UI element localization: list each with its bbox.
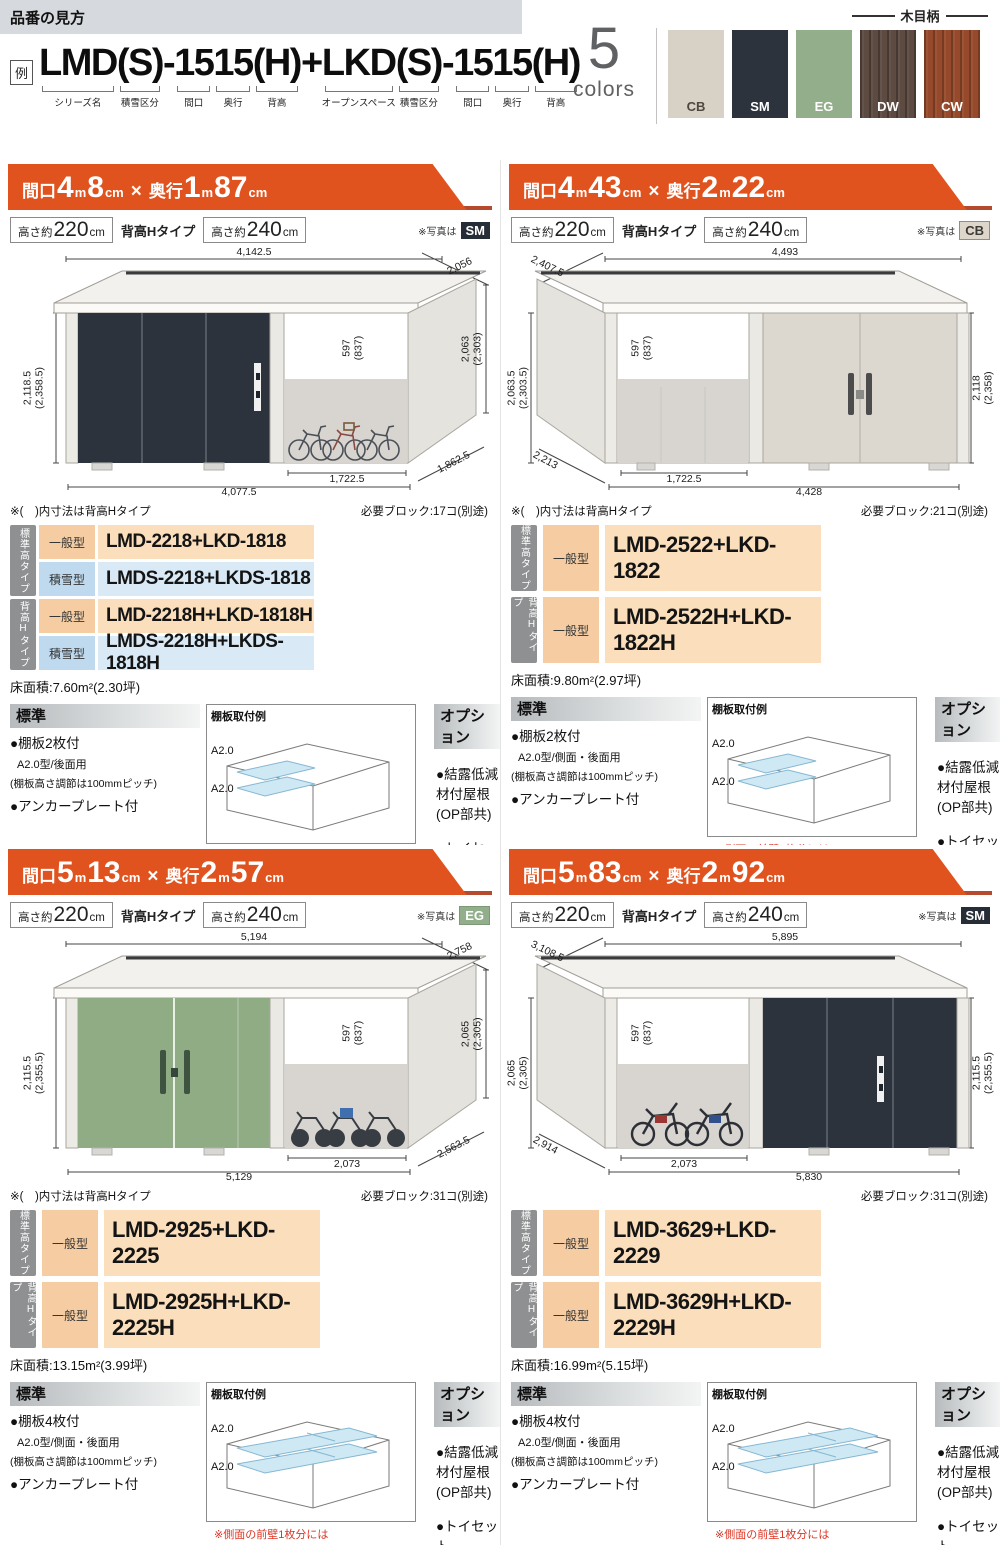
code-segment: + [301,44,322,95]
shelf-label: A2.0 [712,776,735,788]
divider [656,28,657,124]
shelf-label: A2.0 [211,1423,234,1435]
kind-cell: 一般型 [543,597,599,663]
options-heading: オプション [434,1382,500,1427]
dim-label: 2,063(2,303) [460,332,483,365]
height-240-pill: 高さ約240cm [203,902,306,928]
code-segment: LMDシリーズ名 [39,44,117,109]
shelf-column: 棚板取付例 A2.0 A2.0 ※側面の前壁1枚分には棚板は取付け [206,1382,428,1545]
floor-area: 床面積:9.80m²(2.97坪) [511,670,1000,689]
size-banner: 間口5m13cm×奥行2m57cm [8,849,496,895]
floor-area: 床面積:16.99m²(5.15坪) [511,1355,1000,1374]
height-220-pill: 高さ約220cm [10,217,113,243]
code-segment: 15奥行 [213,44,252,109]
model-cell: LMD-2522H+LKD-1822H [605,597,821,663]
kind-cell: 一般型 [42,1282,98,1348]
blocks-note: 必要ブロック:31コ(別途) [861,1188,988,1204]
product-panel-4: 間口5m83cm×奥行2m92cm 高さ約220cm 背高Hタイプ 高さ約240… [500,845,1000,1545]
product-grid: 間口4m8cm×奥行1m87cm 高さ約220cm 背高Hタイプ 高さ約240c… [0,160,1000,1545]
size-banner: 間口4m43cm×奥行2m22cm [509,164,996,210]
code-segment: (S)積雪区分 [117,44,163,109]
code-segment: 15間口 [174,44,213,109]
options-heading: オプション [434,704,500,749]
options-heading: オプション [935,1382,1000,1427]
product-panel-2: 間口4m43cm×奥行2m22cm 高さ約220cm 背高Hタイプ 高さ約240… [500,160,1000,845]
type-label: 標準高タイプ [511,525,537,591]
standard-heading: 標準 [10,1382,200,1406]
color-swatch-cb: CB [668,30,724,118]
drawing-notes: 必要ブロック:31コ(別途) [511,1188,988,1204]
size-banner: 間口5m83cm×奥行2m92cm [509,849,996,895]
shelf-label: A2.0 [712,1461,735,1473]
options-heading: オプション [935,697,1000,742]
dim-label: 1,722.5 [329,474,364,486]
shelf-label: A2.0 [712,738,735,750]
height-row: 高さ約220cm 背高Hタイプ 高さ約240cm ※写真はSM [511,902,990,928]
shelf-column: 棚板取付例 A2.0 A2.0 ※側面の前壁1枚分には棚板は取付け [707,1382,929,1545]
color-swatches: CB SM EG DW CW [668,30,980,118]
shelf-example-box: 棚板取付例 A2.0 A2.0 [707,1382,917,1522]
shelf-warning: ※側面の前壁1枚分には棚板は取付けられません。 [715,1527,929,1545]
size-banner: 間口4m8cm×奥行1m87cm [8,164,496,210]
dim-label: 5,830 [796,1172,822,1184]
shelf-example-box: 棚板取付例 A2.0 A2.0 [206,704,416,844]
standard-column: 標準 ●棚板2枚付 A2.0型/後面用 (棚板高さ調節は100mmピッチ) ●ア… [10,704,200,845]
height-220-pill: 高さ約220cm [511,217,614,243]
dimension-drawing: 5,895 3,108.5 2,065(2,305) 2,115.5(2,355… [509,932,996,1184]
tall-type-label: 背高Hタイプ [121,906,195,925]
section-title: 品番の見方 [10,7,85,28]
dim-label: 2,115.5(2,355.5) [971,1052,994,1094]
photo-note: ※写真は [417,908,455,923]
page-header: 品番の見方 例 LMDシリーズ名 (S)積雪区分 - 15間口 15奥行 (H)… [0,0,1000,160]
blocks-note: 必要ブロック:21コ(別途) [861,503,988,519]
options-column: オプション ●結露低減材付屋根(OP部共) ●トイセット36+LKD22 ●内ア… [935,1382,1000,1545]
code-segment: (H)背高 [253,44,301,109]
height-220-pill: 高さ約220cm [511,902,614,928]
dim-label: 4,428 [796,487,822,499]
tall-type-label: 背高Hタイプ [622,906,696,925]
kind-cell: 一般型 [543,525,599,591]
photo-note: ※写真は [917,223,955,238]
standard-heading: 標準 [511,1382,701,1406]
photo-note: ※写真は [918,908,956,923]
type-label: 背高Hタイプ [10,1282,36,1348]
model-cell: LMD-2218H+LKD-1818H [98,599,314,633]
blocks-note: 必要ブロック:17コ(別途) [361,503,488,519]
kind-cell: 一般型 [543,1210,599,1276]
section-title-band: 品番の見方 [0,0,522,34]
blocks-note: 必要ブロック:31コ(別途) [361,1188,488,1204]
dimension-drawing: 4,142.5 2,056 2,118.5(2,358.5) 2,063(2,3… [8,247,496,499]
dim-label: 1,722.5 [666,474,701,486]
dim-label: 597(837) [630,336,653,361]
tall-type-label: 背高Hタイプ [622,221,696,240]
model-cell: LMDS-2218H+LKDS-1818H [98,636,314,670]
photo-color-badge: EG [459,906,490,925]
dim-label: 5,194 [241,932,267,944]
code-segment: - [163,44,174,95]
color-swatch-cw: CW [924,30,980,118]
model-table: 標準高タイプ 一般型 LMD-2522+LKD-1822 背高Hタイプ 一般型 … [511,525,1000,663]
height-240-pill: 高さ約240cm [704,902,807,928]
height-240-pill: 高さ約240cm [704,217,807,243]
model-cell: LMDS-2218+LKDS-1818 [98,562,314,596]
photo-color-badge: SM [961,907,991,924]
floor-area: 床面積:13.15m²(3.99坪) [10,1355,500,1374]
model-cell: LMD-3629+LKD-2229 [605,1210,821,1276]
detail-columns: 標準 ●棚板4枚付 A2.0型/側面・後面用 (棚板高さ調節は100mmピッチ)… [10,1382,494,1545]
model-cell: LMD-3629H+LKD-2229H [605,1282,821,1348]
dimension-drawing: 4,493 2,407.5 2,063.5(2,303.5) 2,118(2,3… [509,247,996,499]
options-column: オプション ●結露低減材付屋根(OP部共) ●トイセット25+LKD18 ●内ア… [935,697,1000,845]
dim-label: 4,493 [772,247,798,259]
photo-color-badge: SM [461,222,491,239]
dim-label: 2,118.5(2,358.5) [22,367,45,409]
paren-note: ※( )内寸法は背高Hタイプ [511,503,652,519]
drawing-notes: ※( )内寸法は背高Hタイプ 必要ブロック:17コ(別途) [10,503,488,519]
detail-columns: 標準 ●棚板2枚付 A2.0型/後面用 (棚板高さ調節は100mmピッチ) ●ア… [10,704,494,845]
kind-cell: 一般型 [42,1210,98,1276]
dim-label: 4,077.5 [221,487,256,499]
dim-label: 2,065(2,305) [506,1056,529,1089]
height-row: 高さ約220cm 背高Hタイプ 高さ約240cm ※写真はCB [511,217,990,243]
dim-label: 2,118(2,358) [971,371,994,404]
model-cell: LMD-2925H+LKD-2225H [104,1282,320,1348]
dim-label: 5,895 [772,932,798,944]
dim-label: 5,129 [226,1172,252,1184]
kind-cell: 積雪型 [39,562,95,596]
kind-cell: 積雪型 [39,636,95,670]
options-column: オプション ●結露低減材付屋根(OP部共) ●トイセット29+LKD22 ●内ア… [434,1382,500,1545]
paren-note: ※( )内寸法は背高Hタイプ [10,1188,151,1204]
standard-column: 標準 ●棚板2枚付 A2.0型/側面・後面用 (棚板高さ調節は100mmピッチ)… [511,697,701,845]
height-row: 高さ約220cm 背高Hタイプ 高さ約240cm ※写真はEG [10,902,490,928]
options-column: オプション ●結露低減材付屋根(OP部共) ●トイセット22+LKD18 ●内ア… [434,704,500,845]
standard-heading: 標準 [10,704,200,728]
dim-label: 597(837) [341,336,364,361]
height-240-pill: 高さ約240cm [203,217,306,243]
code-segment: - [442,44,453,95]
product-panel-1: 間口4m8cm×奥行1m87cm 高さ約220cm 背高Hタイプ 高さ約240c… [0,160,500,845]
product-panel-3: 間口5m13cm×奥行2m57cm 高さ約220cm 背高Hタイプ 高さ約240… [0,845,500,1545]
drawing-notes: ※( )内寸法は背高Hタイプ 必要ブロック:31コ(別途) [10,1188,488,1204]
model-cell: LMD-2522+LKD-1822 [605,525,821,591]
shelf-warning: ※側面の前壁1枚分には棚板は取付けられません。 [214,1527,428,1545]
shelf-label: A2.0 [211,745,234,757]
dimension-drawing: 5,194 2,758 2,115.5(2,355.5) 2,065(2,305… [8,932,496,1184]
dim-label: 2,073 [671,1159,697,1171]
code-segment: (S)積雪区分 [396,44,442,109]
type-label: 背高Hタイプ [10,599,36,670]
type-label: 標準高タイプ [511,1210,537,1276]
standard-column: 標準 ●棚板4枚付 A2.0型/側面・後面用 (棚板高さ調節は100mmピッチ)… [10,1382,200,1545]
kind-cell: 一般型 [39,599,95,633]
detail-columns: 標準 ●棚板2枚付 A2.0型/側面・後面用 (棚板高さ調節は100mmピッチ)… [511,697,994,845]
model-cell: LMD-2925+LKD-2225 [104,1210,320,1276]
dim-label: 2,115.5(2,355.5) [22,1052,45,1094]
type-label: 背高Hタイプ [511,1282,537,1348]
detail-columns: 標準 ●棚板4枚付 A2.0型/側面・後面用 (棚板高さ調節は100mmピッチ)… [511,1382,994,1545]
color-swatch-dw: DW [860,30,916,118]
height-row: 高さ約220cm 背高Hタイプ 高さ約240cm ※写真はSM [10,217,490,243]
code-segment: LKDオープンスペース [322,44,396,109]
dim-label: 597(837) [630,1021,653,1046]
wood-grain-label: 木目柄 [852,6,988,25]
kind-cell: 一般型 [543,1282,599,1348]
shelf-label: A2.0 [712,1423,735,1435]
dim-label: 2,073 [334,1159,360,1171]
color-swatch-eg: EG [796,30,852,118]
shelf-label: A2.0 [211,1461,234,1473]
paren-note: ※( )内寸法は背高Hタイプ [10,503,151,519]
colors-count: 5 colors [556,20,652,102]
catalog-page: 品番の見方 例 LMDシリーズ名 (S)積雪区分 - 15間口 15奥行 (H)… [0,0,1000,1545]
shelf-example-box: 棚板取付例 A2.0 A2.0 [206,1382,416,1522]
floor-area: 床面積:7.60m²(2.30坪) [10,677,500,696]
example-badge: 例 [10,60,33,85]
type-label: 背高Hタイプ [511,597,537,663]
shelf-column: 棚板取付例 A2.0 A2.0 ※側面の前壁1枚分には棚板は取付けられません。 [206,704,428,845]
standard-column: 標準 ●棚板4枚付 A2.0型/側面・後面用 (棚板高さ調節は100mmピッチ)… [511,1382,701,1545]
model-code-example: 例 LMDシリーズ名 (S)積雪区分 - 15間口 15奥行 (H)背高 + L… [10,44,580,109]
drawing-notes: ※( )内寸法は背高Hタイプ 必要ブロック:21コ(別途) [511,503,988,519]
shelf-column: 棚板取付例 A2.0 A2.0 ※側面の前壁1枚分には棚板は取付けられません。 [707,697,929,845]
shelf-example-box: 棚板取付例 A2.0 A2.0 [707,697,917,837]
dim-label: 4,142.5 [236,247,271,259]
photo-color-badge: CB [959,221,990,240]
model-table: 標準高タイプ 一般型 LMD-2218+LKD-1818 積雪型 LMDS-22… [10,525,500,670]
model-table: 標準高タイプ 一般型 LMD-2925+LKD-2225 背高Hタイプ 一般型 … [10,1210,500,1348]
photo-note: ※写真は [418,223,456,238]
tall-type-label: 背高Hタイプ [121,221,195,240]
model-cell: LMD-2218+LKD-1818 [98,525,314,559]
height-220-pill: 高さ約220cm [10,902,113,928]
model-table: 標準高タイプ 一般型 LMD-3629+LKD-2229 背高Hタイプ 一般型 … [511,1210,1000,1348]
code-segment: 15奥行 [492,44,531,109]
standard-heading: 標準 [511,697,701,721]
color-swatch-sm: SM [732,30,788,118]
dim-label: 2,063.5(2,303.5) [506,367,529,409]
code-segment: 15間口 [453,44,492,109]
type-label: 標準高タイプ [10,525,36,596]
type-label: 標準高タイプ [10,1210,36,1276]
shelf-label: A2.0 [211,783,234,795]
dim-label: 597(837) [341,1021,364,1046]
kind-cell: 一般型 [39,525,95,559]
dim-label: 2,065(2,305) [460,1017,483,1050]
